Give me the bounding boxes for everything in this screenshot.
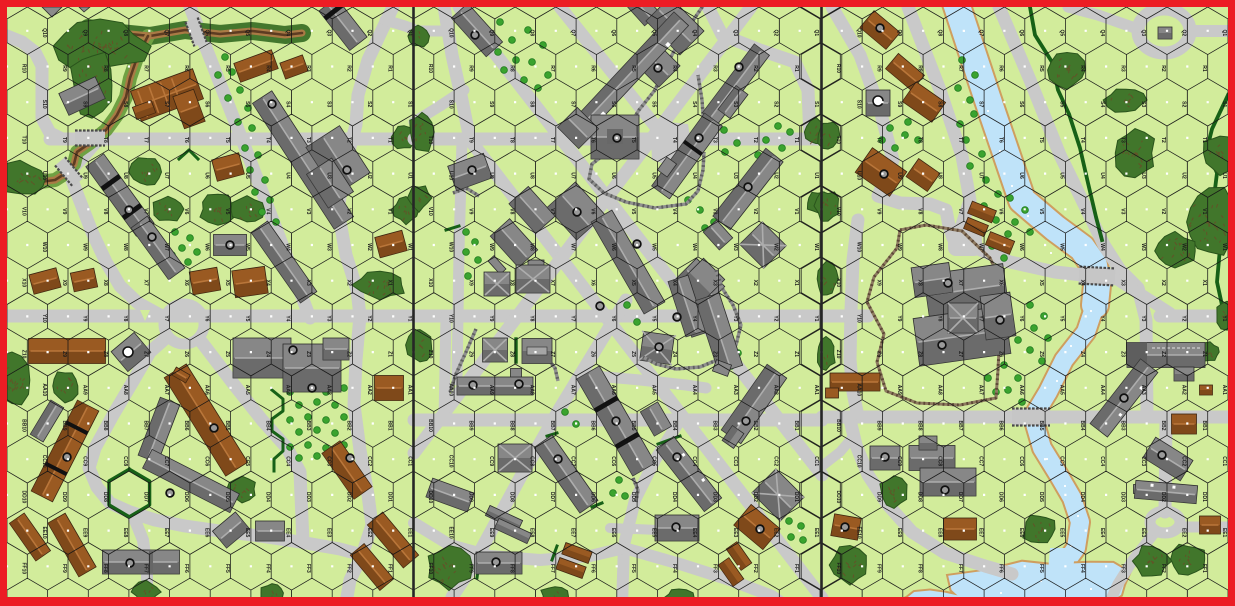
svg-text:Z2: Z2 <box>752 351 758 357</box>
svg-text:T5: T5 <box>630 137 636 143</box>
svg-text:FF2: FF2 <box>346 564 352 573</box>
svg-text:T5: T5 <box>224 137 230 143</box>
svg-text:Z10: Z10 <box>427 350 433 359</box>
svg-text:Y5: Y5 <box>244 315 250 321</box>
svg-text:Y7: Y7 <box>977 315 983 321</box>
svg-text:U9: U9 <box>488 172 494 179</box>
svg-text:V9: V9 <box>61 208 67 214</box>
svg-text:W9: W9 <box>488 243 494 251</box>
svg-text:Y9: Y9 <box>896 315 902 321</box>
svg-text:DD6: DD6 <box>590 492 596 502</box>
svg-text:Y6: Y6 <box>1018 315 1024 321</box>
svg-text:FF8: FF8 <box>508 564 514 573</box>
svg-text:V10: V10 <box>427 207 433 216</box>
svg-text:FF5: FF5 <box>224 564 230 573</box>
svg-text:Q10: Q10 <box>41 28 47 38</box>
svg-text:U9: U9 <box>82 172 88 179</box>
svg-text:AA6: AA6 <box>1018 385 1024 395</box>
svg-text:Q4: Q4 <box>691 29 697 36</box>
svg-text:Z1: Z1 <box>1201 351 1207 357</box>
svg-text:AA7: AA7 <box>977 385 983 395</box>
svg-text:S1: S1 <box>813 101 819 107</box>
svg-text:Z5: Z5 <box>224 351 230 357</box>
svg-text:Z5: Z5 <box>630 351 636 357</box>
svg-text:AA4: AA4 <box>285 385 291 395</box>
svg-text:R3: R3 <box>305 65 311 72</box>
svg-text:Y2: Y2 <box>366 315 372 321</box>
svg-text:R2: R2 <box>752 65 758 72</box>
svg-text:Y6: Y6 <box>203 315 209 321</box>
svg-text:EE4: EE4 <box>1099 528 1105 538</box>
svg-text:S2: S2 <box>366 101 372 107</box>
svg-text:R8: R8 <box>508 65 514 72</box>
svg-text:W2: W2 <box>366 243 372 251</box>
svg-text:BB10: BB10 <box>21 419 27 432</box>
svg-text:EE10: EE10 <box>41 526 47 538</box>
svg-text:CC9: CC9 <box>896 456 902 466</box>
svg-text:Q1: Q1 <box>407 29 413 36</box>
svg-text:W7: W7 <box>163 243 169 251</box>
svg-text:FF10: FF10 <box>835 562 841 574</box>
svg-text:DD2: DD2 <box>752 492 758 502</box>
svg-text:EE1: EE1 <box>407 528 413 538</box>
svg-text:R1: R1 <box>386 65 392 72</box>
svg-text:CC2: CC2 <box>1181 456 1187 466</box>
svg-text:EE1: EE1 <box>1221 528 1227 538</box>
svg-text:FF9: FF9 <box>61 564 67 573</box>
svg-text:U3: U3 <box>325 172 331 179</box>
svg-text:FF5: FF5 <box>1038 564 1044 573</box>
svg-text:DD6: DD6 <box>183 492 189 502</box>
svg-text:Y9: Y9 <box>82 315 88 321</box>
svg-text:Q2: Q2 <box>366 29 372 36</box>
svg-text:Z1: Z1 <box>386 351 392 357</box>
svg-text:U4: U4 <box>285 172 291 179</box>
svg-text:CC4: CC4 <box>1099 456 1105 466</box>
svg-text:BB10: BB10 <box>835 419 841 432</box>
svg-text:X2: X2 <box>1160 280 1166 286</box>
svg-text:EE6: EE6 <box>203 528 209 538</box>
svg-text:X8: X8 <box>916 280 922 286</box>
svg-text:Y8: Y8 <box>122 315 128 321</box>
svg-text:Y7: Y7 <box>163 315 169 321</box>
svg-text:AA8: AA8 <box>529 385 535 395</box>
svg-text:W3: W3 <box>1140 243 1146 251</box>
svg-text:FF1: FF1 <box>1201 564 1207 573</box>
svg-text:BB3: BB3 <box>1120 420 1126 430</box>
svg-text:CC4: CC4 <box>691 456 697 466</box>
svg-text:Y3: Y3 <box>1140 315 1146 321</box>
svg-text:FF6: FF6 <box>998 564 1004 573</box>
svg-text:V5: V5 <box>1038 208 1044 214</box>
svg-text:AA5: AA5 <box>1059 385 1065 395</box>
svg-text:X7: X7 <box>142 280 148 286</box>
svg-text:V8: V8 <box>916 208 922 214</box>
svg-text:U6: U6 <box>203 172 209 179</box>
svg-text:BB9: BB9 <box>61 420 67 430</box>
svg-text:R3: R3 <box>712 65 718 72</box>
svg-text:Q6: Q6 <box>203 29 209 36</box>
svg-text:T6: T6 <box>590 137 596 143</box>
svg-text:W3: W3 <box>325 243 331 251</box>
svg-text:R3: R3 <box>1120 65 1126 72</box>
svg-text:T4: T4 <box>671 137 677 143</box>
svg-text:W2: W2 <box>773 243 779 251</box>
svg-text:W8: W8 <box>529 243 535 251</box>
svg-text:T9: T9 <box>468 137 474 143</box>
svg-text:S9: S9 <box>488 101 494 107</box>
svg-text:S2: S2 <box>1181 101 1187 107</box>
svg-text:S3: S3 <box>325 101 331 107</box>
svg-text:V7: V7 <box>142 208 148 214</box>
svg-text:X3: X3 <box>305 280 311 286</box>
svg-text:S6: S6 <box>203 101 209 107</box>
svg-text:X6: X6 <box>590 280 596 286</box>
svg-text:CC3: CC3 <box>732 456 738 466</box>
svg-text:AA4: AA4 <box>1099 385 1105 395</box>
svg-text:V7: V7 <box>549 208 555 214</box>
svg-text:Z4: Z4 <box>264 351 270 357</box>
svg-text:U8: U8 <box>937 172 943 179</box>
svg-text:U2: U2 <box>773 172 779 179</box>
svg-text:X8: X8 <box>508 280 514 286</box>
svg-text:DD1: DD1 <box>1201 492 1207 502</box>
svg-text:AA10: AA10 <box>41 383 47 396</box>
svg-text:CC9: CC9 <box>82 456 88 466</box>
svg-text:R10: R10 <box>21 64 27 73</box>
svg-text:Y5: Y5 <box>651 315 657 321</box>
svg-text:FF7: FF7 <box>549 564 555 573</box>
svg-text:FF3: FF3 <box>1120 564 1126 573</box>
svg-text:Y1: Y1 <box>407 315 413 321</box>
svg-text:T9: T9 <box>876 137 882 143</box>
svg-text:EE6: EE6 <box>610 528 616 538</box>
svg-text:AA1: AA1 <box>1221 385 1227 395</box>
svg-text:S5: S5 <box>651 101 657 107</box>
svg-text:BB2: BB2 <box>752 420 758 430</box>
svg-text:CC10: CC10 <box>855 455 861 468</box>
svg-text:Q8: Q8 <box>122 29 128 36</box>
svg-text:BB2: BB2 <box>1160 420 1166 430</box>
svg-text:X1: X1 <box>386 280 392 286</box>
svg-text:V3: V3 <box>712 208 718 214</box>
svg-text:U1: U1 <box>813 172 819 179</box>
svg-text:AA9: AA9 <box>896 385 902 395</box>
svg-text:CC7: CC7 <box>977 456 983 466</box>
svg-text:V8: V8 <box>102 208 108 214</box>
svg-text:CC4: CC4 <box>285 456 291 466</box>
svg-text:AA7: AA7 <box>569 385 575 395</box>
svg-text:T2: T2 <box>346 137 352 143</box>
svg-text:BB8: BB8 <box>916 420 922 430</box>
svg-text:CC8: CC8 <box>122 456 128 466</box>
svg-text:EE7: EE7 <box>163 528 169 538</box>
svg-text:U10: U10 <box>447 171 453 180</box>
svg-text:BB5: BB5 <box>1038 420 1044 430</box>
svg-text:S10: S10 <box>447 100 453 109</box>
svg-text:S5: S5 <box>244 101 250 107</box>
svg-text:W10: W10 <box>855 242 861 253</box>
svg-text:Q8: Q8 <box>937 29 943 36</box>
svg-text:FF5: FF5 <box>630 564 636 573</box>
svg-text:Q3: Q3 <box>1140 29 1146 36</box>
svg-text:R10: R10 <box>427 64 433 73</box>
svg-text:FF4: FF4 <box>264 564 270 573</box>
svg-text:Y2: Y2 <box>773 315 779 321</box>
svg-text:Z6: Z6 <box>590 351 596 357</box>
svg-text:AA10: AA10 <box>447 383 453 396</box>
svg-text:EE7: EE7 <box>569 528 575 538</box>
svg-text:R6: R6 <box>183 65 189 72</box>
svg-text:T1: T1 <box>386 137 392 143</box>
svg-text:R7: R7 <box>142 65 148 72</box>
svg-text:V4: V4 <box>1079 208 1085 214</box>
svg-text:FF9: FF9 <box>876 564 882 573</box>
svg-text:R5: R5 <box>630 65 636 72</box>
svg-text:T6: T6 <box>183 137 189 143</box>
svg-text:Y1: Y1 <box>813 315 819 321</box>
svg-text:U1: U1 <box>407 172 413 179</box>
svg-text:FF6: FF6 <box>183 564 189 573</box>
svg-text:X6: X6 <box>998 280 1004 286</box>
svg-text:T10: T10 <box>427 136 433 145</box>
svg-text:S8: S8 <box>529 101 535 107</box>
svg-text:EE8: EE8 <box>122 528 128 538</box>
svg-text:Q5: Q5 <box>651 29 657 36</box>
svg-text:X3: X3 <box>712 280 718 286</box>
svg-text:U5: U5 <box>244 172 250 179</box>
svg-text:EE5: EE5 <box>1059 528 1065 538</box>
svg-text:R1: R1 <box>793 65 799 72</box>
svg-text:S9: S9 <box>82 101 88 107</box>
svg-text:V5: V5 <box>224 208 230 214</box>
svg-text:S4: S4 <box>1099 101 1105 107</box>
svg-text:CC10: CC10 <box>447 455 453 468</box>
svg-text:R4: R4 <box>671 65 677 72</box>
svg-text:FF6: FF6 <box>590 564 596 573</box>
svg-text:BB3: BB3 <box>712 420 718 430</box>
svg-text:U7: U7 <box>163 172 169 179</box>
svg-text:Q7: Q7 <box>569 29 575 36</box>
svg-text:CC5: CC5 <box>244 456 250 466</box>
svg-text:CC7: CC7 <box>569 456 575 466</box>
svg-text:BB6: BB6 <box>998 420 1004 430</box>
svg-text:Z7: Z7 <box>549 351 555 357</box>
svg-text:BB4: BB4 <box>1079 420 1085 430</box>
svg-text:DD7: DD7 <box>142 492 148 502</box>
svg-text:W5: W5 <box>651 243 657 251</box>
svg-text:AA9: AA9 <box>82 385 88 395</box>
svg-text:U1: U1 <box>1221 172 1227 179</box>
svg-text:CC3: CC3 <box>1140 456 1146 466</box>
svg-text:EE2: EE2 <box>773 528 779 538</box>
svg-text:W6: W6 <box>1018 243 1024 251</box>
svg-text:CC2: CC2 <box>773 456 779 466</box>
svg-text:V10: V10 <box>835 207 841 216</box>
svg-text:CC8: CC8 <box>529 456 535 466</box>
svg-text:W6: W6 <box>610 243 616 251</box>
svg-text:X4: X4 <box>264 280 270 286</box>
svg-text:U10: U10 <box>855 171 861 180</box>
svg-text:V4: V4 <box>671 208 677 214</box>
svg-text:AA2: AA2 <box>773 385 779 395</box>
svg-text:S1: S1 <box>407 101 413 107</box>
svg-text:AA9: AA9 <box>488 385 494 395</box>
svg-text:AA4: AA4 <box>691 385 697 395</box>
svg-text:S2: S2 <box>773 101 779 107</box>
svg-text:BB8: BB8 <box>102 420 108 430</box>
svg-text:X5: X5 <box>1038 280 1044 286</box>
svg-text:DD3: DD3 <box>1120 492 1126 502</box>
svg-text:Z2: Z2 <box>346 351 352 357</box>
svg-text:T4: T4 <box>264 137 270 143</box>
svg-text:EE2: EE2 <box>366 528 372 538</box>
svg-text:T7: T7 <box>142 137 148 143</box>
svg-text:W10: W10 <box>41 242 47 253</box>
svg-text:S5: S5 <box>1059 101 1065 107</box>
svg-text:Q3: Q3 <box>325 29 331 36</box>
svg-text:CC5: CC5 <box>651 456 657 466</box>
svg-text:Y10: Y10 <box>855 314 861 323</box>
svg-text:Q9: Q9 <box>82 29 88 36</box>
svg-text:U4: U4 <box>691 172 697 179</box>
svg-text:R4: R4 <box>1079 65 1085 72</box>
svg-text:S8: S8 <box>122 101 128 107</box>
svg-text:Y4: Y4 <box>691 315 697 321</box>
svg-text:Z7: Z7 <box>957 351 963 357</box>
svg-text:V2: V2 <box>1160 208 1166 214</box>
svg-text:U7: U7 <box>977 172 983 179</box>
svg-text:V3: V3 <box>1120 208 1126 214</box>
svg-text:X10: X10 <box>21 278 27 287</box>
svg-text:AA3: AA3 <box>1140 385 1146 395</box>
svg-text:EE3: EE3 <box>732 528 738 538</box>
svg-text:Z10: Z10 <box>21 350 27 359</box>
svg-text:U2: U2 <box>366 172 372 179</box>
svg-text:W9: W9 <box>82 243 88 251</box>
svg-text:DD2: DD2 <box>346 492 352 502</box>
svg-text:Y9: Y9 <box>488 315 494 321</box>
svg-text:V10: V10 <box>21 207 27 216</box>
svg-text:V3: V3 <box>305 208 311 214</box>
svg-text:S6: S6 <box>1018 101 1024 107</box>
svg-text:U5: U5 <box>1059 172 1065 179</box>
svg-text:AA6: AA6 <box>203 385 209 395</box>
svg-text:X7: X7 <box>549 280 555 286</box>
svg-text:CC8: CC8 <box>937 456 943 466</box>
svg-text:R9: R9 <box>468 65 474 72</box>
svg-text:BB7: BB7 <box>142 420 148 430</box>
svg-text:X9: X9 <box>61 280 67 286</box>
svg-text:Y8: Y8 <box>937 315 943 321</box>
svg-text:W5: W5 <box>1059 243 1065 251</box>
svg-text:CC7: CC7 <box>163 456 169 466</box>
svg-text:EE9: EE9 <box>488 528 494 538</box>
svg-text:EE4: EE4 <box>691 528 697 538</box>
svg-text:Z7: Z7 <box>142 351 148 357</box>
svg-text:Z10: Z10 <box>835 350 841 359</box>
svg-text:BB3: BB3 <box>305 420 311 430</box>
svg-text:AA2: AA2 <box>1181 385 1187 395</box>
svg-text:EE7: EE7 <box>977 528 983 538</box>
svg-text:T9: T9 <box>61 137 67 143</box>
svg-text:X9: X9 <box>876 280 882 286</box>
svg-text:FF7: FF7 <box>957 564 963 573</box>
svg-text:EE3: EE3 <box>1140 528 1146 538</box>
svg-text:DD6: DD6 <box>998 492 1004 502</box>
svg-text:U6: U6 <box>1018 172 1024 179</box>
svg-text:FF10: FF10 <box>21 562 27 574</box>
svg-text:DD8: DD8 <box>916 492 922 502</box>
svg-text:S7: S7 <box>977 101 983 107</box>
svg-text:EE2: EE2 <box>1181 528 1187 538</box>
svg-text:FF3: FF3 <box>305 564 311 573</box>
svg-text:Z3: Z3 <box>712 351 718 357</box>
svg-text:DD10: DD10 <box>427 491 433 504</box>
svg-text:BB9: BB9 <box>876 420 882 430</box>
svg-text:W7: W7 <box>977 243 983 251</box>
svg-text:T10: T10 <box>21 136 27 145</box>
svg-text:AA8: AA8 <box>122 385 128 395</box>
svg-text:U10: U10 <box>41 171 47 180</box>
svg-text:DD1: DD1 <box>386 492 392 502</box>
svg-text:T3: T3 <box>305 137 311 143</box>
svg-text:R7: R7 <box>549 65 555 72</box>
svg-text:V1: V1 <box>1201 208 1207 214</box>
svg-text:R5: R5 <box>224 65 230 72</box>
svg-text:CC3: CC3 <box>325 456 331 466</box>
svg-text:W8: W8 <box>122 243 128 251</box>
svg-text:W1: W1 <box>407 243 413 251</box>
svg-text:DD2: DD2 <box>1160 492 1166 502</box>
svg-text:X1: X1 <box>1201 280 1207 286</box>
svg-text:AA8: AA8 <box>937 385 943 395</box>
svg-text:BB1: BB1 <box>386 420 392 430</box>
svg-text:BB8: BB8 <box>508 420 514 430</box>
svg-text:R9: R9 <box>876 65 882 72</box>
svg-text:FF9: FF9 <box>468 564 474 573</box>
svg-text:U7: U7 <box>569 172 575 179</box>
svg-text:X4: X4 <box>671 280 677 286</box>
svg-text:V9: V9 <box>876 208 882 214</box>
svg-text:R7: R7 <box>957 65 963 72</box>
svg-text:X4: X4 <box>1079 280 1085 286</box>
svg-text:Z6: Z6 <box>998 351 1004 357</box>
svg-text:BB4: BB4 <box>671 420 677 430</box>
svg-text:X3: X3 <box>1120 280 1126 286</box>
svg-text:DD9: DD9 <box>876 492 882 502</box>
svg-text:V7: V7 <box>957 208 963 214</box>
svg-text:V6: V6 <box>998 208 1004 214</box>
svg-text:R10: R10 <box>835 64 841 73</box>
svg-text:U5: U5 <box>651 172 657 179</box>
svg-text:Y4: Y4 <box>285 315 291 321</box>
svg-text:T2: T2 <box>752 137 758 143</box>
svg-text:X2: X2 <box>752 280 758 286</box>
svg-text:W4: W4 <box>1099 243 1105 251</box>
svg-text:Y10: Y10 <box>447 314 453 323</box>
svg-text:T3: T3 <box>1120 137 1126 143</box>
svg-text:CC1: CC1 <box>407 456 413 466</box>
svg-text:Z5: Z5 <box>1038 351 1044 357</box>
svg-text:AA6: AA6 <box>610 385 616 395</box>
svg-text:CC1: CC1 <box>1221 456 1227 466</box>
svg-text:AA1: AA1 <box>813 385 819 395</box>
svg-text:R1: R1 <box>1201 65 1207 72</box>
svg-text:DD10: DD10 <box>835 491 841 504</box>
svg-text:W7: W7 <box>569 243 575 251</box>
svg-text:DD3: DD3 <box>305 492 311 502</box>
